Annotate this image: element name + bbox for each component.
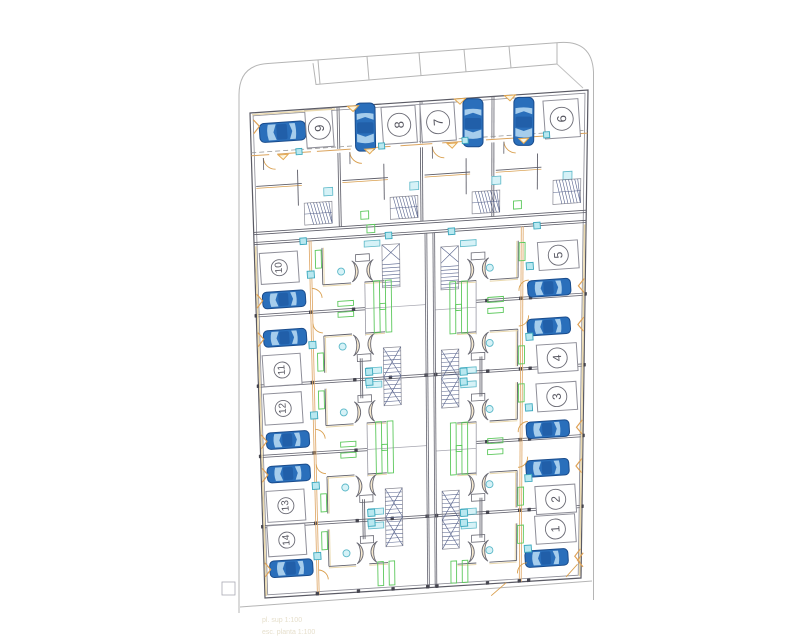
- svg-text:9: 9: [312, 124, 327, 132]
- svg-text:14: 14: [281, 534, 293, 546]
- svg-text:pl. sup 1:100: pl. sup 1:100: [262, 617, 302, 624]
- svg-text:6: 6: [554, 115, 569, 123]
- svg-text:1: 1: [548, 525, 562, 533]
- svg-text:4: 4: [550, 354, 564, 362]
- svg-text:11: 11: [276, 364, 288, 376]
- svg-text:esc. planta 1:100: esc. planta 1:100: [262, 629, 315, 636]
- svg-text:7: 7: [430, 118, 445, 126]
- svg-text:2: 2: [548, 495, 562, 503]
- svg-text:13: 13: [280, 499, 292, 511]
- svg-text:8: 8: [391, 121, 406, 129]
- svg-text:5: 5: [551, 251, 565, 259]
- svg-text:3: 3: [550, 392, 564, 400]
- svg-text:12: 12: [277, 402, 289, 414]
- svg-text:10: 10: [273, 261, 285, 273]
